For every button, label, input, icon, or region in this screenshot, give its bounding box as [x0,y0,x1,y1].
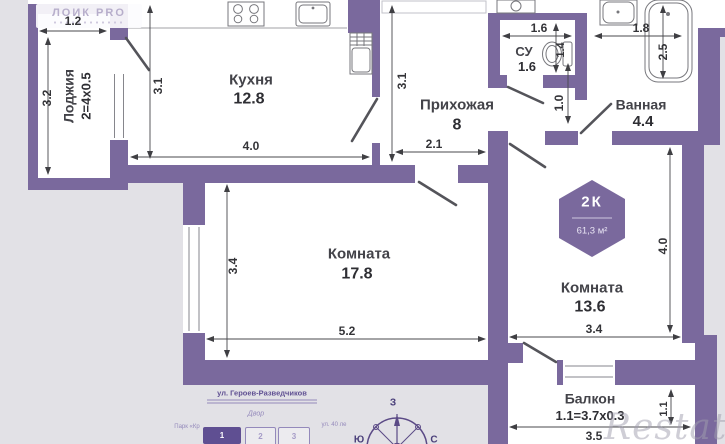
room-area-wc: 1.6 [518,59,536,75]
room-name-wc: СУ [515,44,532,60]
compass-icon [363,414,431,444]
dim-wc-depth: 1.4 [555,42,567,57]
dim-bedroom-height: 4.0 [656,238,670,255]
stove-icon [228,2,264,26]
dim-bedroom-width: 3.4 [586,322,603,336]
watermark-dots [52,21,126,24]
hall-closet [382,1,486,13]
top-watermark: ЛОИК PRO [36,4,142,28]
room-name-living: Комната [328,246,390,265]
shower-tray-icon [600,0,637,25]
dim-living-height: 3.4 [226,258,240,275]
washing-machine-icon [497,0,535,13]
room-name-kitchen: Кухня [229,72,273,91]
watermark-brand-text: ЛОИК PRO [52,8,126,19]
floor-plan: Лоджия 2=4х0.5 Кухня 12.8 Прихожая 8 СУ … [0,0,725,444]
room-area: 2=4х0.5 [78,69,94,123]
badge-area: 61,3 м² [577,226,608,237]
dim-kitchen-width: 4.0 [243,139,260,153]
room-area-bathroom: 4.4 [633,113,654,131]
street-line [207,400,317,403]
bottom-watermark: Restate [604,407,725,444]
dim-balcony-width: 3.5 [586,429,603,443]
room-area-bedroom: 13.6 [574,297,605,316]
room-name-bedroom: Комната [561,280,623,299]
area-badge [559,180,625,257]
dim-bathroom-width: 1.8 [633,21,650,35]
dim-loggia-width: 1.2 [65,14,82,28]
kitchen-sink-icon [296,2,330,26]
fridge-icon [350,33,372,74]
dim-kitchen-height: 3.1 [151,78,165,95]
window [563,360,615,385]
room-area-kitchen: 12.8 [233,89,264,108]
dim-bathtub-length: 2.5 [656,44,670,61]
dim-corridor-width: 1.0 [552,95,566,112]
room-name-bathroom: Ванная [616,96,667,114]
room-area-hallway: 8 [453,115,462,134]
bathtub-icon [645,0,692,82]
room-name: Лоджия [60,69,78,123]
room-label-loggia: Лоджия 2=4х0.5 [60,69,93,123]
plan-linework [0,0,725,444]
window [110,72,128,140]
dim-hallway-height: 3.1 [395,73,409,90]
room-name-hallway: Прихожая [420,97,494,116]
room-name-balcony: Балкон [565,390,616,408]
window [183,225,205,333]
room-area-living: 17.8 [341,264,372,283]
dim-wc-width: 1.6 [531,21,548,35]
badge-rooms: 2К [581,194,603,211]
dim-hallway-width: 2.1 [426,137,443,151]
dim-loggia-height: 3.2 [40,90,54,107]
dim-living-width: 5.2 [339,324,356,338]
